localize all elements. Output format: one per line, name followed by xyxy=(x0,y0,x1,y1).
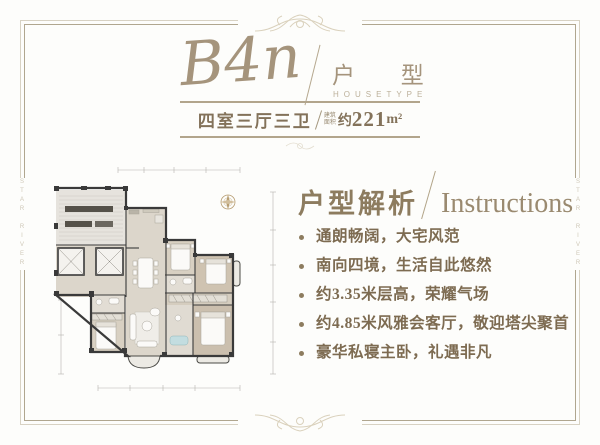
floor-plan xyxy=(43,160,295,400)
mini-flourish-icon xyxy=(282,138,318,154)
room-spec: 四室三厅三卫 xyxy=(198,107,312,132)
list-item: 南向四境，生活自此悠然 xyxy=(299,257,577,276)
category-cn: 户 型 xyxy=(332,56,444,90)
bullet-dot-icon xyxy=(299,264,304,269)
instructions-list: 通朗畅阔，大宅风范 南向四境，生活自此悠然 约3.35米层高，荣耀气场 约4.8… xyxy=(299,228,577,373)
area-slash-divider xyxy=(315,110,322,129)
list-item: 豪华私寝主卧，礼遇非凡 xyxy=(299,344,577,363)
area-prefix: 建筑 面积 xyxy=(324,113,336,127)
bullet-dot-icon xyxy=(299,322,304,327)
instructions-title: 户型解析 Instructions xyxy=(298,176,573,218)
bullet-dot-icon xyxy=(299,235,304,240)
list-item: 约3.35米层高，荣耀气场 xyxy=(299,286,577,305)
area-unit: m² xyxy=(386,112,402,128)
area-value: 221 xyxy=(352,107,387,132)
instructions-title-cn: 户型解析 xyxy=(298,191,418,218)
area-spec-box: 四室三厅三卫 建筑 面积 约 221 m² xyxy=(180,101,420,138)
bullet-dot-icon xyxy=(299,293,304,298)
brochure-card: STAR RIVER STAR RIVER B4n 户 型 HOUSETYPE … xyxy=(0,0,600,445)
category-en: HOUSETYPE xyxy=(333,90,427,99)
watermark-left: STAR RIVER xyxy=(8,178,36,270)
instructions-title-en: Instructions xyxy=(441,190,573,218)
bullet-dot-icon xyxy=(299,351,304,356)
watermark-left-text: STAR RIVER xyxy=(19,179,25,269)
list-item: 通朗畅阔，大宅风范 xyxy=(299,228,577,247)
north-compass-icon xyxy=(221,195,236,210)
flourish-ornament-bottom xyxy=(238,404,362,440)
instructions-title-slash xyxy=(421,171,436,219)
flourish-icon xyxy=(245,407,355,437)
area-about: 约 xyxy=(338,110,352,130)
list-item: 约4.85米风雅会客厅，敬迎塔尖聚首 xyxy=(299,315,577,334)
unit-code: B4n xyxy=(166,25,315,98)
